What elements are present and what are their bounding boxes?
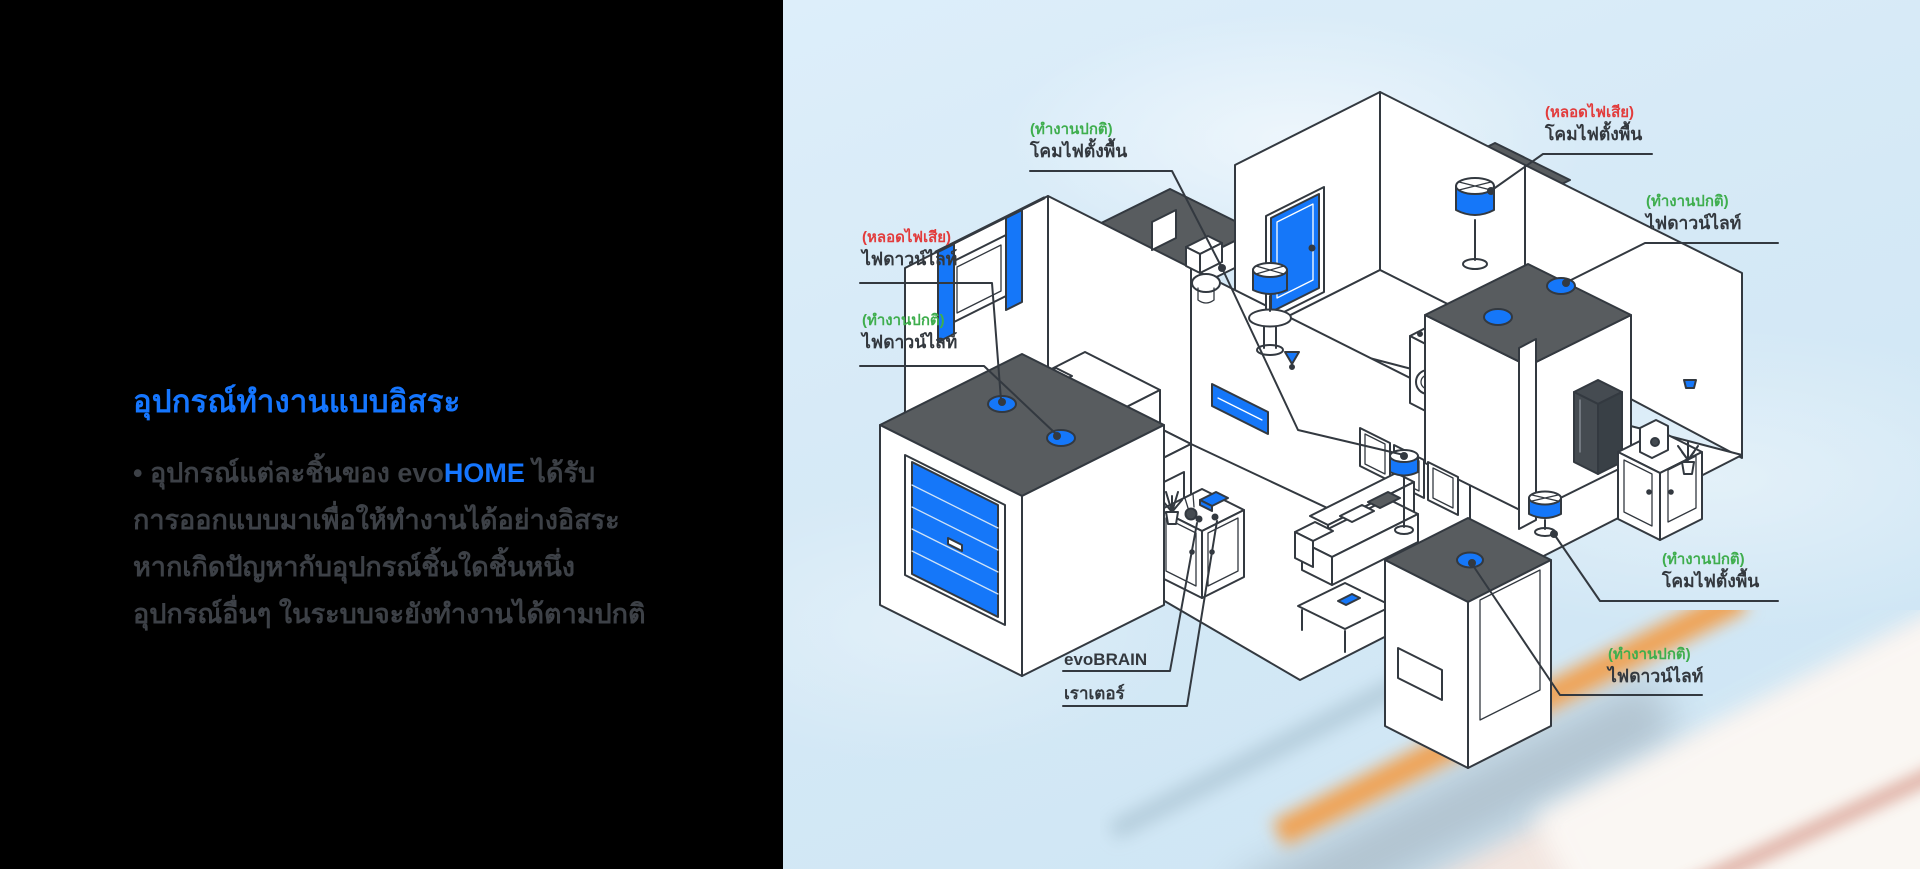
status-badge: (ทำงานปกติ) [1608,646,1703,663]
page-title: อุปกรณ์ทำงานแบบอิสระ [133,376,460,426]
intro-line-2: การออกแบบมาเพื่อให้ทำงานได้อย่างอิสระ [133,497,693,544]
device-name: โคมไฟตั้งพื้น [1030,141,1127,161]
status-badge: (หลอดไฟเสีย) [862,229,957,246]
device-name: ไฟดาวน์ไลท์ [862,332,957,352]
label-kitchen-downlight: (ทำงานปกติ) ไฟดาวน์ไลท์ [1646,193,1741,233]
intro-line-3: หากเกิดปัญหากับอุปกรณ์ชิ้นใดชิ้นหนึ่ง [133,544,693,591]
device-name: โคมไฟตั้งพื้น [1662,571,1759,591]
label-entry-downlight-ok: (ทำงานปกติ) ไฟดาวน์ไลท์ [862,312,957,352]
status-badge: (ทำงานปกติ) [862,312,957,329]
page: อุปกรณ์ทำงานแบบอิสระ • อุปกรณ์แต่ละชิ้นข… [0,0,1920,869]
intro-line1-suffix: ได้รับ [525,458,595,488]
device-name: ไฟดาวน์ไลท์ [862,249,957,269]
label-evobrain: evoBRAIN [1064,650,1147,670]
device-name: เราเตอร์ [1064,684,1125,704]
device-name: โคมไฟตั้งพื้น [1545,124,1642,144]
label-entry-downlight-broken: (หลอดไฟเสีย) ไฟดาวน์ไลท์ [862,229,957,269]
label-front-room-downlight: (ทำงานปกติ) ไฟดาวน์ไลท์ [1608,646,1703,686]
brand-home: HOME [444,458,525,488]
brand-evo: evo [397,458,444,488]
intro-panel: อุปกรณ์ทำงานแบบอิสระ • อุปกรณ์แต่ละชิ้นข… [0,0,783,869]
device-name: ไฟดาวน์ไลท์ [1608,666,1703,686]
label-bedroom-floor-lamp: (ทำงานปกติ) โคมไฟตั้งพื้น [1030,121,1127,161]
device-name: ไฟดาวน์ไลท์ [1646,213,1741,233]
status-badge: (ทำงานปกติ) [1662,551,1759,568]
label-dining-floor-lamp: (ทำงานปกติ) โคมไฟตั้งพื้น [1662,551,1759,591]
label-upper-right-floor-lamp: (หลอดไฟเสีย) โคมไฟตั้งพื้น [1545,104,1642,144]
status-badge: (ทำงานปกติ) [1030,121,1127,138]
intro-line1-prefix: • อุปกรณ์แต่ละชิ้นของ [133,458,397,488]
intro-paragraph: • อุปกรณ์แต่ละชิ้นของ evoHOME ได้รับ การ… [133,450,693,638]
intro-line-1: • อุปกรณ์แต่ละชิ้นของ evoHOME ได้รับ [133,450,693,497]
label-router: เราเตอร์ [1064,684,1125,704]
illustration-panel [783,0,1920,869]
status-badge: (หลอดไฟเสีย) [1545,104,1642,121]
status-badge: (ทำงานปกติ) [1646,193,1741,210]
device-name: evoBRAIN [1064,650,1147,670]
intro-line-4: อุปกรณ์อื่นๆ ในระบบจะยังทำงานได้ตามปกติ [133,591,693,638]
